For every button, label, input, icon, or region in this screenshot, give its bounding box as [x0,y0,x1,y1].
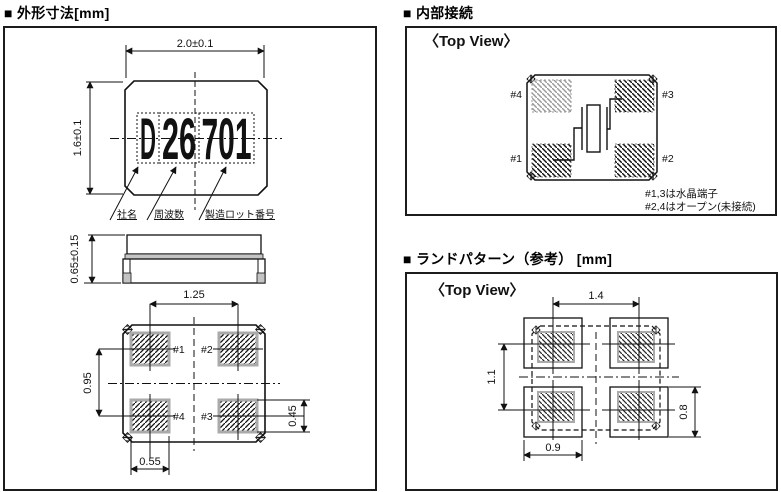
bottom-pad-label-3: #3 [201,411,213,423]
land-pattern-drawing: 〈Top View〉 [407,274,776,489]
marking-lot-chars: 701 [202,107,252,172]
pad-2 [615,144,654,177]
internal-connection-panel: 〈Top View〉 #4 #3 #1 #2 #1,3は水晶端子 #2,4はオー… [405,26,777,216]
dim-pitch-x: 1.4 [588,290,603,302]
marking-frequency-chars: 26 [162,107,196,172]
outline-drawing: D 26 701 2.0±0.1 1.6±0.1 社名 周波数 製造ロット番号 … [5,28,375,489]
dim-body-height: 1.6±0.1 [72,120,84,157]
land-pattern-panel: 〈Top View〉 [405,272,778,491]
package-bottom-view [99,304,310,475]
land-view-label: 〈Top View〉 [430,281,524,299]
package-pad-projection [618,392,654,422]
internal-pad-label-3: #3 [662,89,674,101]
marking-company-char: D [140,107,156,172]
package-pad-projection [538,392,574,422]
dim-land-width: 0.9 [545,442,560,454]
package-pad-projection [538,332,574,362]
internal-connection-drawing: 〈Top View〉 #4 #3 #1 #2 #1,3は水晶端子 #2,4はオー… [407,28,775,214]
dim-pitch-y: 1.1 [486,369,498,384]
bottom-pad-label-2: #2 [201,344,213,356]
dim-body-width: 2.0±0.1 [177,38,214,50]
callout-lot: 製造ロット番号 [205,208,275,221]
dim-pad-height: 0.45 [287,405,299,426]
foot-pad [257,273,265,283]
outline-drawing-panel: D 26 701 2.0±0.1 1.6±0.1 社名 周波数 製造ロット番号 … [3,26,377,491]
internal-top-view [527,75,657,180]
bottom-pad-label-1: #1 [173,344,185,356]
internal-pad-label-4: #4 [510,89,522,101]
package-pad-projection [618,332,654,362]
dim-pad-width: 0.55 [139,456,160,468]
seal-ring [125,254,263,259]
dim-pad-pitch-y: 0.95 [82,372,94,393]
internal-pad-label-1: #1 [510,153,522,165]
callout-company: 社名 [117,208,137,221]
lid [127,235,261,254]
callout-frequency: 周波数 [154,208,184,221]
pad-4 [532,80,571,112]
bottom-pad-label-4: #4 [173,411,185,423]
internal-note-1: #1,3は水晶端子 [645,187,718,200]
foot-pad [123,273,131,283]
internal-pad-label-2: #2 [662,153,674,165]
dim-thickness: 0.65±0.15 [69,235,81,284]
dim-pad-pitch-x: 1.25 [183,289,204,301]
land-pattern-top-view [498,297,701,461]
package-side-view [84,235,265,283]
outline-section-title: ■ 外形寸法[mm] [4,3,110,23]
land-section-title: ■ ランドパターン（参考） [mm] [403,249,612,269]
body [123,259,265,283]
internal-section-title: ■ 内部接続 [403,3,473,23]
pad-3 [615,80,654,112]
internal-note-2: #2,4はオープン(未接続) [645,200,756,213]
dim-land-height: 0.8 [678,404,690,419]
crystal-element [587,105,600,152]
internal-view-label: 〈Top View〉 [424,32,518,50]
